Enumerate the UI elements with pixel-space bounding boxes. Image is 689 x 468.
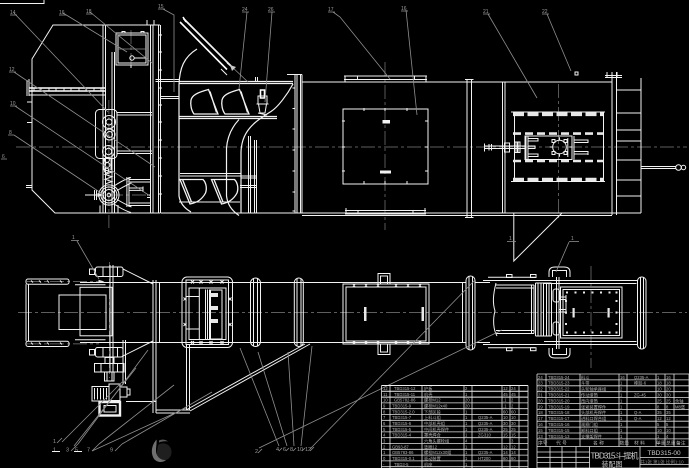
svg-text:M8堡: M8堡 xyxy=(675,403,686,409)
svg-text:16: 16 xyxy=(666,375,671,380)
svg-text:12: 12 xyxy=(305,447,311,453)
svg-text:Q235-A: Q235-A xyxy=(478,427,493,432)
svg-text:TBD315-12: TBD315-12 xyxy=(394,386,416,391)
svg-text:15: 15 xyxy=(538,428,543,433)
svg-text:5: 5 xyxy=(75,448,78,454)
svg-text:机座: 机座 xyxy=(424,461,432,468)
svg-text:GB93-87: GB93-87 xyxy=(392,445,409,450)
svg-text:TBD315-21: TBD315-21 xyxy=(548,393,570,398)
svg-text:14: 14 xyxy=(511,450,516,455)
svg-text:TBD315-22: TBD315-22 xyxy=(548,387,570,392)
svg-text:TBD315-11: TBD315-11 xyxy=(394,392,416,397)
svg-text:橡胶-6: 橡胶-6 xyxy=(634,380,647,387)
svg-text:24: 24 xyxy=(511,386,516,391)
svg-text:上料斗组: 上料斗组 xyxy=(424,414,441,421)
svg-text:支撑架焊件: 支撑架焊件 xyxy=(581,433,602,440)
svg-text:10: 10 xyxy=(297,447,303,453)
svg-text:材 料: 材 料 xyxy=(634,440,645,447)
svg-text:60: 60 xyxy=(503,410,508,415)
svg-text:6: 6 xyxy=(283,447,286,453)
svg-text:16: 16 xyxy=(538,422,543,427)
svg-text:装配图: 装配图 xyxy=(602,460,623,468)
svg-text:13: 13 xyxy=(538,434,543,439)
svg-text:TBD3-5: TBD3-5 xyxy=(394,462,409,467)
svg-text:21: 21 xyxy=(538,393,543,398)
svg-text:罩壳焊合: 罩壳焊合 xyxy=(424,432,442,439)
svg-text:Q235-A: Q235-A xyxy=(478,450,493,455)
svg-text:12: 12 xyxy=(657,416,662,421)
svg-text:数量: 数量 xyxy=(620,440,630,447)
svg-text:30: 30 xyxy=(511,421,516,426)
svg-text:3: 3 xyxy=(66,448,69,454)
svg-text:Q235-A: Q235-A xyxy=(634,375,649,380)
svg-text:35: 35 xyxy=(657,410,662,415)
svg-text:TBD315-4: TBD315-4 xyxy=(392,433,412,438)
svg-text:GB5782-86: GB5782-86 xyxy=(394,398,416,403)
svg-text:18: 18 xyxy=(666,381,671,386)
svg-text:30: 30 xyxy=(666,393,671,398)
svg-text:11: 11 xyxy=(383,392,388,397)
svg-text:22: 22 xyxy=(538,387,543,392)
svg-text:TBD315-23: TBD315-23 xyxy=(548,381,570,386)
svg-text:序号: 序号 xyxy=(538,440,548,447)
svg-text:护板: 护板 xyxy=(424,385,433,392)
svg-text:10: 10 xyxy=(511,415,516,420)
svg-text:10: 10 xyxy=(503,415,508,420)
svg-text:24: 24 xyxy=(538,375,543,380)
svg-text:20: 20 xyxy=(465,398,470,403)
svg-text:20: 20 xyxy=(465,404,470,409)
svg-text:18: 18 xyxy=(538,410,543,415)
svg-text:16: 16 xyxy=(620,375,625,380)
svg-text:35: 35 xyxy=(666,410,671,415)
svg-text:25: 25 xyxy=(666,398,671,403)
svg-text:Q-A: Q-A xyxy=(634,416,642,421)
svg-text:备注: 备注 xyxy=(676,440,686,447)
svg-text:ZG-45: ZG-45 xyxy=(634,393,647,398)
svg-text:TBD315-5: TBD315-5 xyxy=(392,427,412,432)
svg-text:螺栓M12: 螺栓M12 xyxy=(424,397,441,404)
svg-text:45: 45 xyxy=(511,392,516,397)
svg-text:TBD315斗-提机: TBD315斗-提机 xyxy=(591,451,639,461)
svg-text:30: 30 xyxy=(657,393,662,398)
svg-text:GB5783-86: GB5783-86 xyxy=(392,450,414,455)
svg-text:25: 25 xyxy=(503,427,508,432)
svg-text:25: 25 xyxy=(511,427,516,432)
svg-text:螺栓M12x30组: 螺栓M12x30组 xyxy=(424,449,451,456)
svg-text:15: 15 xyxy=(511,433,516,438)
svg-text:TBD315-18: TBD315-18 xyxy=(548,410,570,415)
svg-text:60: 60 xyxy=(503,456,508,461)
svg-text:12: 12 xyxy=(383,386,388,391)
svg-text:中部机壳组: 中部机壳组 xyxy=(424,420,445,427)
svg-text:TBD315-2.0: TBD315-2.0 xyxy=(392,410,415,415)
svg-text:17: 17 xyxy=(538,416,543,421)
svg-text:Q235-A: Q235-A xyxy=(478,415,493,420)
svg-text:TBD315-0.1: TBD315-0.1 xyxy=(392,456,415,461)
svg-text:TBD315-17: TBD315-17 xyxy=(548,416,570,421)
svg-text:12: 12 xyxy=(666,416,671,421)
svg-text:HT200: HT200 xyxy=(478,456,491,461)
svg-text:TBD315-20: TBD315-20 xyxy=(548,398,570,403)
svg-text:12: 12 xyxy=(511,445,516,450)
svg-text:25: 25 xyxy=(657,398,662,403)
svg-text:TBD315-24: TBD315-24 xyxy=(548,375,570,380)
svg-text:TBD315-16: TBD315-16 xyxy=(548,422,570,427)
svg-text:单重: 单重 xyxy=(656,440,666,447)
svg-text:六角头螺栓组: 六角头螺栓组 xyxy=(424,438,449,445)
svg-text:1: 1 xyxy=(53,448,56,454)
svg-text:60: 60 xyxy=(511,410,516,415)
svg-text:名 称: 名 称 xyxy=(593,440,604,447)
svg-text:10: 10 xyxy=(383,398,388,403)
svg-text:18: 18 xyxy=(657,381,662,386)
svg-text:10: 10 xyxy=(657,387,662,392)
svg-text:TBD315-15: TBD315-15 xyxy=(548,428,570,433)
svg-text:45: 45 xyxy=(503,392,508,397)
svg-text:总重: 总重 xyxy=(666,440,676,447)
svg-text:12: 12 xyxy=(503,445,508,450)
svg-text:60: 60 xyxy=(511,456,516,461)
svg-text:TBD315-13: TBD315-13 xyxy=(548,434,570,439)
svg-text:TBD315-7: TBD315-7 xyxy=(392,415,412,420)
svg-text:9: 9 xyxy=(110,448,113,454)
svg-text:30: 30 xyxy=(503,421,508,426)
svg-text:15: 15 xyxy=(503,433,508,438)
svg-text:7: 7 xyxy=(87,448,90,454)
svg-text:20: 20 xyxy=(666,387,671,392)
svg-text:4: 4 xyxy=(276,447,279,453)
svg-text:20: 20 xyxy=(538,398,543,403)
svg-text:TBD315-19: TBD315-19 xyxy=(548,404,570,409)
svg-text:驱动装置: 驱动装置 xyxy=(424,455,441,462)
svg-text:TBD315-00: TBD315-00 xyxy=(647,450,681,457)
svg-text:Q235-A: Q235-A xyxy=(478,421,493,426)
svg-text:10: 10 xyxy=(666,428,671,433)
svg-text:14: 14 xyxy=(503,450,508,455)
svg-text:TBD315-9: TBD315-9 xyxy=(392,404,412,409)
svg-text:共1张 第1张 比例1:10: 共1张 第1张 比例1:10 xyxy=(640,459,684,466)
svg-text:19: 19 xyxy=(538,404,543,409)
svg-text:8: 8 xyxy=(290,447,293,453)
svg-text:12: 12 xyxy=(503,386,508,391)
svg-text:2: 2 xyxy=(255,449,258,455)
svg-text:TBD315-6: TBD315-6 xyxy=(392,421,412,426)
svg-text:代 号: 代 号 xyxy=(556,440,567,447)
svg-text:ZG310: ZG310 xyxy=(478,433,491,438)
svg-text:23: 23 xyxy=(538,381,543,386)
svg-text:1: 1 xyxy=(53,439,56,445)
svg-text:10: 10 xyxy=(657,428,662,433)
svg-text:螺栓M12x40: 螺栓M12x40 xyxy=(424,403,448,410)
svg-text:Q-A: Q-A xyxy=(634,410,642,415)
